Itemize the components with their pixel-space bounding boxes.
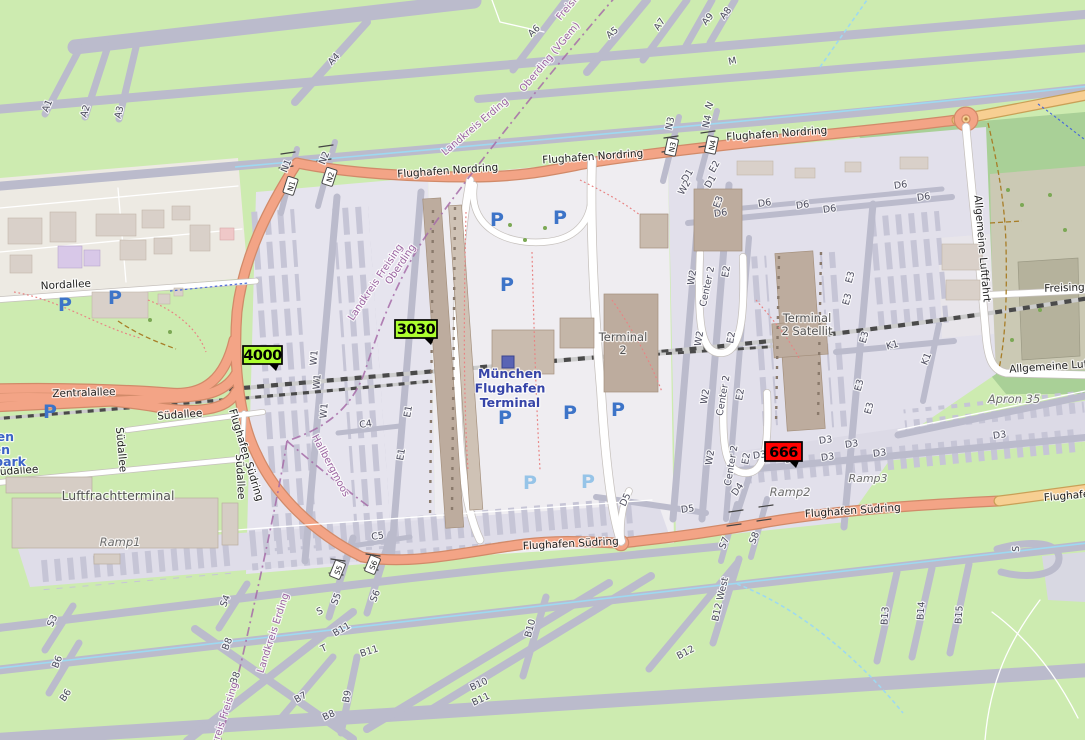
taxiway-label: E1 [395,448,408,462]
taxiway-label: E2 [740,452,753,466]
taxiway-label: W1 [308,350,320,366]
place-label: Ramp1 [100,535,141,549]
parking-icon: P [108,287,122,309]
taxiway-label: B14 [915,601,927,620]
road-label: Zentralallee [52,386,116,400]
place-label: park [0,454,27,469]
taxiway-label: E1 [402,405,415,419]
taxiway-label: B13 [879,606,891,625]
taxiway-label: D3 [992,429,1007,442]
parking-icon: P [58,294,72,316]
taxiway-label: B15 [953,605,965,624]
place-label: Ramp2 [770,485,811,499]
place-label: Terminal2 Satellit [782,311,833,338]
taxiway-label: D3 [820,451,835,464]
road-label: Südallee [233,454,247,500]
parking-icon: P [563,402,577,424]
road-label: Freisinger [1044,281,1085,295]
taxiway-label: D6 [916,191,931,204]
svg-text:3030: 3030 [397,322,436,338]
taxiway-label: E2 [734,388,747,402]
map-canvas[interactable]: A1A2A3A4A6A5A7A9A8MNN3N4N1N2E2D1D1W2E3D6… [0,0,1085,740]
map-viewport[interactable]: A1A2A3A4A6A5A7A9A8MNN3N4N1N2E2D1D1W2E3D6… [0,0,1085,740]
taxiway-label: C4 [359,418,373,431]
parking-icon: P [523,472,537,494]
parking-icon: P [498,407,512,429]
taxiway-label: D5 [680,503,695,516]
station-label: MünchenFlughafenTerminal [475,366,546,410]
taxiway-label: E2 [725,331,738,345]
svg-text:666: 666 [769,445,798,461]
taxiway-label: D3 [872,447,887,460]
parking-icon: P [490,209,504,231]
place-label: Ramp3 [848,472,887,485]
taxiway-label: D6 [893,179,908,192]
taxiway-label: C5 [371,530,385,543]
parking-icon: P [43,401,57,423]
taxiway-label: D6 [795,199,810,212]
taxiway-label: B9 [341,689,354,703]
taxiway-label: D3 [818,434,833,447]
taxiway-label: W1 [311,374,323,390]
taxiway-label: W1 [318,403,330,419]
taxiway-label: E2 [720,265,733,279]
taxiway-label: D6 [822,203,837,216]
parking-icon: P [611,399,625,421]
taxiway-label: S [1011,546,1022,552]
taxiway-label: D3 [844,438,859,451]
place-label: Luftfrachtterminal [62,488,175,503]
parking-icon: P [553,207,567,229]
svg-text:4000: 4000 [243,348,282,364]
place-label: Apron 35 [987,392,1041,406]
taxiway-label: D6 [757,197,772,210]
parking-icon: P [581,471,595,493]
parking-icon: P [500,274,514,296]
taxiway-label: D6 [713,207,728,220]
